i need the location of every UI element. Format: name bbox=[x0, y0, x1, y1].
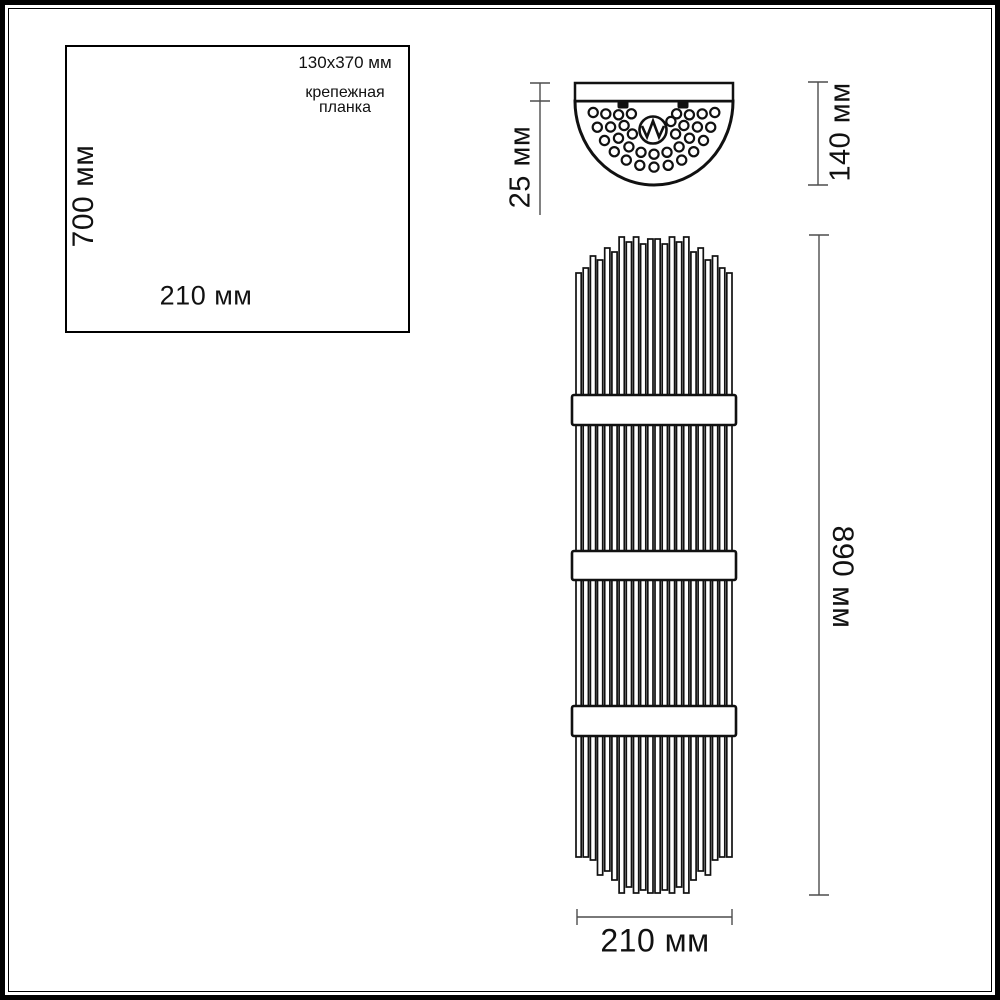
inset-height-dim-label: 700 мм bbox=[67, 145, 101, 248]
lamp-top-view bbox=[530, 82, 828, 215]
crystal-dot bbox=[649, 150, 658, 159]
metal-band-bottom bbox=[572, 706, 736, 736]
crystal-dot bbox=[627, 109, 636, 118]
wall-bar-top-view bbox=[575, 83, 733, 101]
lamp-dimension-drawing: { "inset": { "height_dim": "700 мм", "wi… bbox=[0, 0, 1000, 1000]
crystal-dot bbox=[685, 110, 694, 119]
crystal-dot bbox=[699, 136, 708, 145]
crystal-dot bbox=[614, 110, 623, 119]
crystal-dot bbox=[677, 156, 686, 165]
crystal-dot bbox=[628, 129, 637, 138]
crystal-dot bbox=[666, 117, 675, 126]
crystal-dot bbox=[622, 156, 631, 165]
crystal-dot bbox=[710, 108, 719, 117]
crystal-dot bbox=[589, 108, 598, 117]
crystal-dot bbox=[614, 134, 623, 143]
crystal-dot bbox=[706, 123, 715, 132]
top-view-depth-dim-label: 25 мм bbox=[505, 126, 538, 209]
crystal-dot bbox=[624, 142, 633, 151]
crystal-dot bbox=[698, 109, 707, 118]
crystal-dot bbox=[662, 148, 671, 157]
crystal-dot bbox=[664, 161, 673, 170]
crystal-dot bbox=[593, 123, 602, 132]
crystal-dot bbox=[679, 121, 688, 130]
crystal-dot bbox=[649, 163, 658, 172]
crystal-dot bbox=[606, 122, 615, 131]
metal-band-middle bbox=[572, 551, 736, 580]
crystal-dot bbox=[636, 148, 645, 157]
crystal-dot bbox=[693, 122, 702, 131]
lamp-front-view bbox=[572, 235, 829, 925]
crystal-dot bbox=[600, 136, 609, 145]
metal-band-top bbox=[572, 395, 736, 425]
front-view-width-dim-label: 210 мм bbox=[600, 923, 709, 960]
crystal-dot bbox=[601, 109, 610, 118]
screw-right-icon bbox=[678, 101, 689, 109]
crystal-dot bbox=[689, 147, 698, 156]
crystal-dot bbox=[610, 147, 619, 156]
screw-left-icon bbox=[618, 101, 629, 109]
crystal-dot bbox=[620, 121, 629, 130]
crystal-dot bbox=[635, 161, 644, 170]
annotation-name-line2: планка bbox=[319, 99, 371, 117]
crystal-dot bbox=[675, 142, 684, 151]
crystal-dot bbox=[671, 129, 680, 138]
front-view-height-dim-label: 890 мм bbox=[825, 526, 859, 629]
annotation-size-label: 130x370 мм bbox=[298, 53, 391, 73]
inset-width-dim-label: 210 мм bbox=[160, 281, 253, 312]
top-view-height-dim-label: 140 мм bbox=[825, 82, 858, 181]
crystal-dot bbox=[685, 134, 694, 143]
